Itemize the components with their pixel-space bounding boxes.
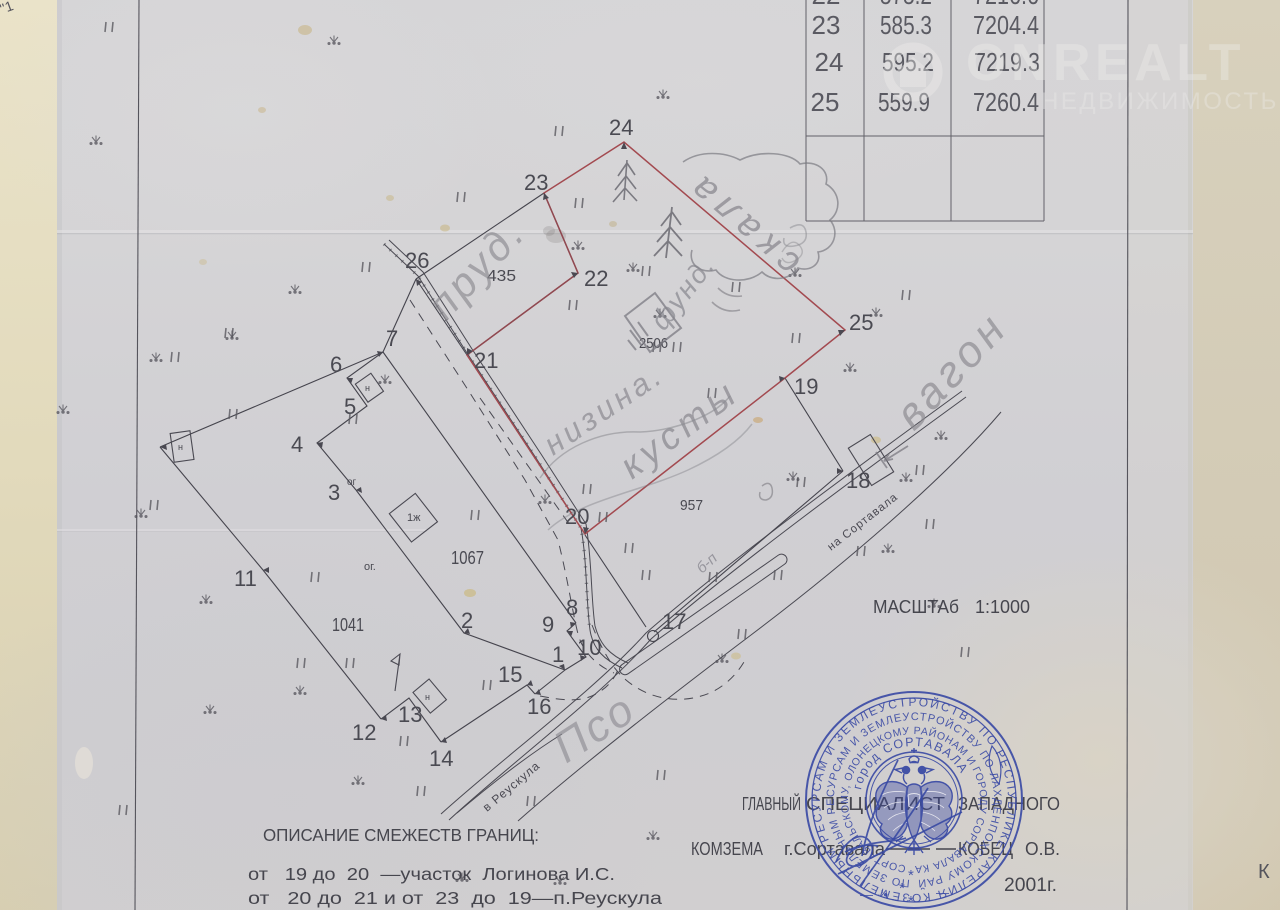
svg-text:ONREALT: ONREALT [966, 34, 1245, 92]
svg-text:3: 3 [328, 480, 340, 505]
svg-text:26: 26 [405, 248, 429, 273]
svg-text:от 20 до 21 и от 23 до 1: от 20 до 21 и от 23 до 19—п.Реускула [248, 888, 662, 908]
svg-text:— ·'•: — ·'• [860, 887, 888, 902]
svg-text:7216.6: 7216.6 [973, 0, 1039, 10]
svg-text:*: * [899, 880, 905, 897]
svg-text:от 19 до 20 —участок Логи: от 19 до 20 —участок Логинова И.С. [248, 864, 615, 884]
svg-text:1041: 1041 [332, 615, 364, 635]
svg-text:4: 4 [291, 432, 303, 457]
svg-text:15: 15 [498, 662, 522, 687]
svg-text:575.2: 575.2 [880, 0, 932, 10]
svg-text:НЕДВИЖИМОСТЬ: НЕДВИЖИМОСТЬ [1041, 88, 1279, 115]
svg-text:13: 13 [398, 702, 422, 727]
svg-text:957: 957 [680, 497, 703, 514]
svg-text:*: * [908, 867, 914, 884]
svg-text:*: * [908, 893, 914, 910]
svg-text:н: н [365, 383, 370, 393]
svg-text:2: 2 [461, 608, 473, 633]
svg-text:2001г.: 2001г. [1004, 875, 1057, 896]
svg-text:25: 25 [811, 87, 840, 117]
svg-text:20: 20 [565, 504, 589, 529]
svg-text:24: 24 [609, 115, 633, 140]
svg-text:16: 16 [527, 694, 551, 719]
svg-text:14: 14 [429, 746, 453, 771]
svg-text:6: 6 [330, 352, 342, 377]
svg-text:17: 17 [662, 609, 686, 634]
svg-text:23: 23 [524, 170, 548, 195]
svg-text:1:1000: 1:1000 [975, 597, 1030, 617]
svg-text:К: К [1258, 861, 1270, 883]
svg-text:—: — [936, 885, 949, 900]
svg-text:9: 9 [542, 612, 554, 637]
svg-text:18: 18 [846, 468, 870, 493]
svg-text:1ж: 1ж [407, 512, 421, 524]
svg-text:8: 8 [566, 595, 578, 620]
svg-text:23: 23 [812, 10, 841, 40]
svg-text:22: 22 [584, 266, 608, 291]
svg-text:12: 12 [352, 720, 376, 745]
svg-text:21: 21 [474, 348, 498, 373]
svg-text:н: н [425, 692, 430, 702]
svg-text:ОПИСАНИЕ СМЕЖЕСТВ ГРАНИЦ:: ОПИСАНИЕ СМЕЖЕСТВ ГРАНИЦ: [263, 825, 539, 845]
svg-text:24: 24 [815, 47, 844, 77]
svg-text:ог.: ог. [364, 561, 376, 573]
svg-text:ог: ог [347, 477, 357, 488]
svg-text:22: 22 [812, 0, 841, 10]
svg-text:585.3: 585.3 [880, 10, 932, 40]
svg-text:10: 10 [577, 635, 601, 660]
svg-text:н: н [178, 442, 183, 452]
svg-text:1067: 1067 [451, 548, 484, 568]
svg-text:ГЛАВНЫЙ: ГЛАВНЫЙ [742, 793, 801, 814]
svg-text:О.В.: О.В. [1025, 839, 1060, 859]
svg-text:КОМЗЕМА: КОМЗЕМА [691, 839, 763, 859]
svg-text:19: 19 [794, 374, 818, 399]
svg-text:25: 25 [849, 310, 873, 335]
svg-text:7: 7 [386, 326, 398, 351]
svg-text:МАСШТАб: МАСШТАб [873, 597, 959, 617]
svg-text:1: 1 [552, 642, 564, 667]
svg-text:11: 11 [234, 566, 257, 591]
